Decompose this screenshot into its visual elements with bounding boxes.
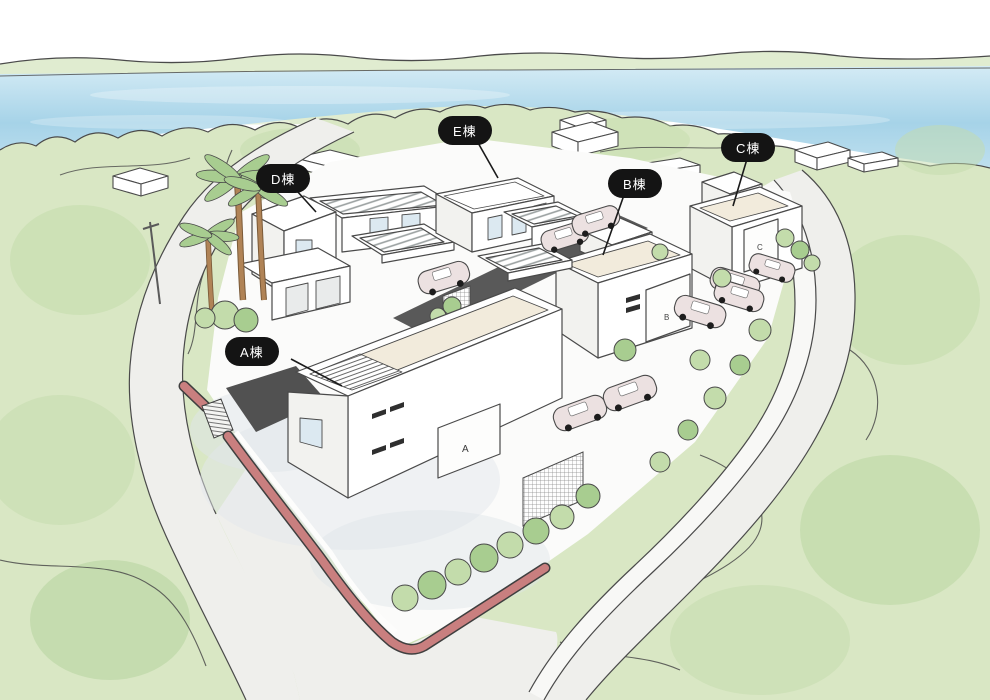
gate-letter-b: B — [664, 313, 669, 322]
label-building-d: D棟 — [256, 164, 310, 193]
site-illustration: C B A — [0, 0, 990, 700]
label-building-b: B棟 — [608, 169, 662, 198]
label-building-a: A棟 — [225, 337, 279, 366]
label-building-e: E棟 — [438, 116, 492, 145]
gate-letter-c: C — [757, 243, 763, 252]
illustration-canvas: C B A — [0, 0, 990, 700]
gate-letter-a: A — [462, 444, 469, 455]
label-building-c: C棟 — [721, 133, 775, 162]
